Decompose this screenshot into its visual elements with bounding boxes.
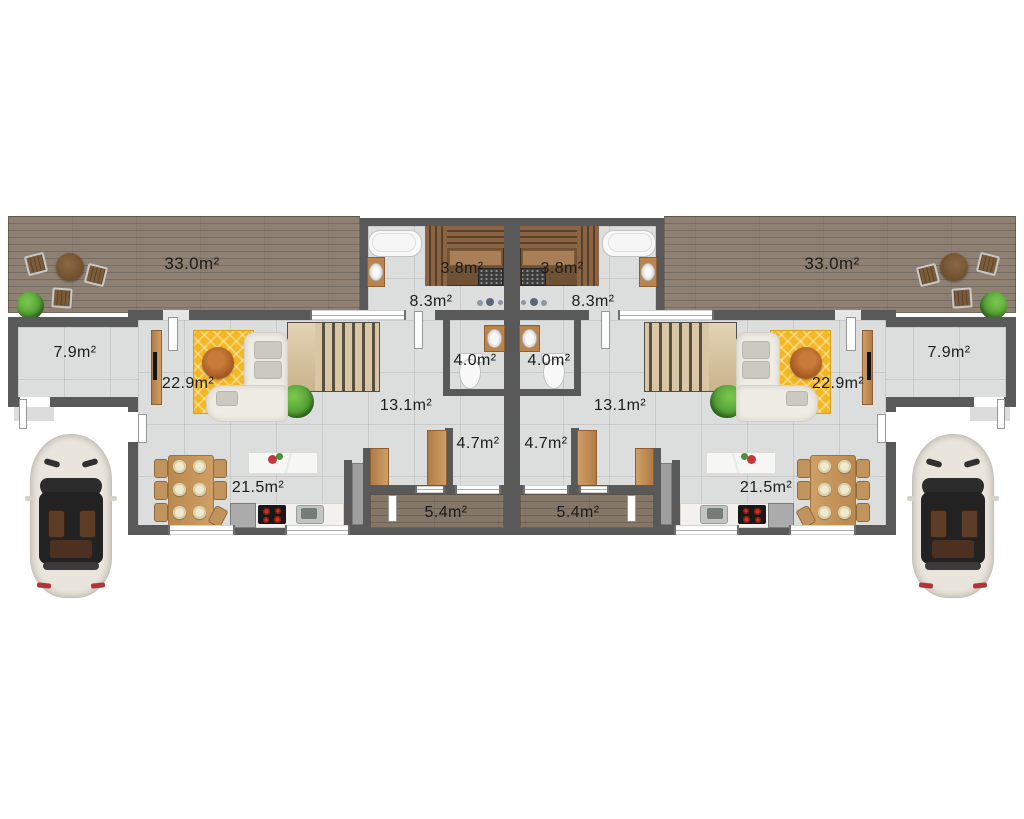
area-label-hall-right: 13.1m² bbox=[594, 397, 646, 415]
burner bbox=[743, 508, 749, 514]
storage-floor bbox=[18, 327, 141, 397]
area-label-kitchen-left: 21.5m² bbox=[232, 479, 284, 497]
area-label-entry-right: 4.7m² bbox=[525, 435, 568, 453]
storage-floor bbox=[883, 327, 1006, 397]
kitchen-wall bbox=[344, 460, 352, 527]
car-taillight bbox=[919, 582, 933, 588]
car-seat bbox=[930, 510, 947, 538]
dining-chair bbox=[856, 481, 870, 500]
dining-chair bbox=[213, 481, 227, 500]
area-label-entry-left: 4.7m² bbox=[457, 435, 500, 453]
storage-door bbox=[997, 399, 1005, 429]
burner bbox=[274, 516, 281, 523]
outdoor-chair bbox=[24, 252, 48, 276]
car-mirror bbox=[109, 496, 117, 501]
tv bbox=[153, 352, 157, 380]
area-label-porch-left: 5.4m² bbox=[425, 504, 468, 522]
dining-chair bbox=[154, 503, 168, 522]
stair-treads bbox=[315, 323, 379, 391]
car-rear-seat bbox=[50, 540, 92, 558]
outdoor-table bbox=[56, 253, 84, 281]
burner bbox=[263, 517, 269, 523]
outdoor-chair bbox=[84, 263, 108, 287]
area-label-bathroom-left: 8.3m² bbox=[410, 293, 453, 311]
car-seat bbox=[961, 510, 978, 538]
car-taillight bbox=[37, 582, 51, 588]
bathtub-basin bbox=[372, 233, 416, 252]
sofa-cushion bbox=[254, 341, 282, 359]
area-label-terrace-left: 33.0m² bbox=[164, 254, 219, 274]
car-taillight bbox=[91, 582, 105, 588]
sofa-pillow bbox=[786, 391, 808, 406]
side-door-opening bbox=[128, 412, 138, 442]
area-label-wc-left: 4.0m² bbox=[454, 352, 497, 370]
car-seat bbox=[48, 510, 65, 538]
bathroom-door bbox=[414, 311, 423, 349]
wardrobe bbox=[635, 448, 654, 490]
plant bbox=[17, 292, 44, 319]
place-setting bbox=[173, 483, 186, 496]
stair-landing bbox=[709, 323, 736, 391]
entry-window bbox=[415, 486, 445, 493]
area-label-living-left: 22.9m² bbox=[162, 375, 214, 393]
burner bbox=[275, 508, 281, 514]
tv bbox=[867, 352, 871, 380]
kitchen-island bbox=[248, 452, 318, 474]
area-label-bathroom-right: 8.3m² bbox=[572, 293, 615, 311]
place-setting bbox=[193, 506, 206, 519]
sofa-cushion bbox=[742, 361, 770, 379]
place-setting bbox=[818, 460, 831, 473]
outdoor-table bbox=[940, 253, 968, 281]
bathroom-sink bbox=[641, 263, 655, 281]
area-label-storage-left: 7.9m² bbox=[54, 344, 97, 362]
sofa-cushion bbox=[254, 361, 282, 379]
kitchen-window bbox=[674, 525, 739, 535]
dining-chair bbox=[797, 459, 811, 478]
car-mirror bbox=[25, 496, 33, 501]
area-label-wc-right: 4.0m² bbox=[528, 352, 571, 370]
wc-wall bbox=[520, 389, 581, 396]
side-door-opening bbox=[886, 412, 896, 442]
wardrobe bbox=[370, 448, 389, 490]
sofa-cushion bbox=[742, 341, 770, 359]
entry-door bbox=[455, 485, 501, 494]
outdoor-chair bbox=[976, 252, 1000, 276]
flower-vase bbox=[747, 455, 756, 464]
place-setting bbox=[173, 506, 186, 519]
car-rear-seat bbox=[932, 540, 974, 558]
stair-landing bbox=[288, 323, 315, 391]
wc-wall bbox=[443, 389, 504, 396]
burner bbox=[755, 517, 761, 523]
shower-head bbox=[530, 298, 538, 306]
dining-chair bbox=[856, 503, 870, 522]
sink-basin bbox=[707, 508, 723, 519]
burner bbox=[263, 508, 270, 515]
place-setting bbox=[193, 483, 206, 496]
kitchen-wall bbox=[672, 460, 680, 527]
dining-chair bbox=[797, 481, 811, 500]
entry-door bbox=[523, 485, 569, 494]
shower-control bbox=[521, 300, 526, 305]
terrace-door bbox=[168, 317, 178, 351]
side-door bbox=[877, 414, 886, 443]
place-setting bbox=[838, 483, 851, 496]
place-setting bbox=[193, 460, 206, 473]
area-label-sauna-right: 3.8m² bbox=[541, 260, 584, 278]
wc-sink bbox=[522, 329, 537, 348]
dining-chair bbox=[213, 459, 227, 478]
area-label-porch-right: 5.4m² bbox=[557, 504, 600, 522]
area-label-kitchen-right: 21.5m² bbox=[740, 479, 792, 497]
wall-segment bbox=[435, 310, 504, 320]
dining-chair bbox=[154, 459, 168, 478]
burner bbox=[754, 508, 761, 515]
side-door bbox=[138, 414, 147, 443]
stove bbox=[258, 505, 286, 524]
staircase bbox=[644, 322, 737, 392]
porch-door bbox=[388, 495, 397, 522]
dining-chair bbox=[154, 481, 168, 500]
place-setting bbox=[818, 483, 831, 496]
area-label-hall-left: 13.1m² bbox=[380, 397, 432, 415]
outdoor-chair bbox=[916, 263, 940, 287]
car-mirror bbox=[907, 496, 915, 501]
burner bbox=[743, 516, 750, 523]
bathtub-basin bbox=[608, 233, 652, 252]
flower-leaves bbox=[276, 453, 283, 460]
car-mirror bbox=[991, 496, 999, 501]
staircase bbox=[287, 322, 380, 392]
car-rear-window bbox=[43, 562, 99, 570]
stair-treads bbox=[645, 323, 709, 391]
shower-control bbox=[477, 300, 483, 306]
porch-door bbox=[627, 495, 636, 522]
floor-plan: 33.0m² 7.9m² 22.9m² 3.8m² 8.3m² 4.0m² 13… bbox=[0, 0, 1024, 819]
dining-chair bbox=[856, 459, 870, 478]
wall-segment bbox=[520, 310, 589, 320]
place-setting bbox=[818, 506, 831, 519]
area-label-sauna-left: 3.8m² bbox=[441, 260, 484, 278]
bathroom-sink bbox=[369, 263, 383, 281]
area-label-living-right: 22.9m² bbox=[812, 375, 864, 393]
living-window bbox=[310, 310, 406, 320]
car-left bbox=[30, 434, 112, 598]
kitchen-window bbox=[285, 525, 350, 535]
plant bbox=[980, 292, 1007, 319]
bathroom-door bbox=[601, 311, 610, 349]
area-label-terrace-right: 33.0m² bbox=[804, 254, 859, 274]
car-right bbox=[912, 434, 994, 598]
place-setting bbox=[838, 460, 851, 473]
car-taillight bbox=[973, 582, 987, 588]
area-label-storage-right: 7.9m² bbox=[928, 344, 971, 362]
shower-control bbox=[541, 300, 547, 306]
sofa-pillow bbox=[216, 391, 238, 406]
car-seat bbox=[79, 510, 96, 538]
entry-window bbox=[579, 486, 609, 493]
car-rear-window bbox=[925, 562, 981, 570]
wardrobe bbox=[577, 430, 597, 490]
sink-basin bbox=[301, 508, 317, 519]
storage-door bbox=[19, 399, 27, 429]
flower-leaves bbox=[741, 453, 748, 460]
stove bbox=[738, 505, 766, 524]
outdoor-chair bbox=[951, 287, 972, 308]
shower-control bbox=[498, 300, 503, 305]
wc-wall bbox=[443, 320, 450, 396]
place-setting bbox=[173, 460, 186, 473]
kitchen-window bbox=[789, 525, 856, 535]
wc-wall bbox=[574, 320, 581, 396]
shower-head bbox=[486, 298, 494, 306]
place-setting bbox=[838, 506, 851, 519]
terrace-door bbox=[846, 317, 856, 351]
outdoor-chair bbox=[51, 287, 72, 308]
living-window bbox=[618, 310, 714, 320]
wc-sink bbox=[487, 329, 502, 348]
wardrobe bbox=[427, 430, 447, 490]
kitchen-window bbox=[168, 525, 235, 535]
